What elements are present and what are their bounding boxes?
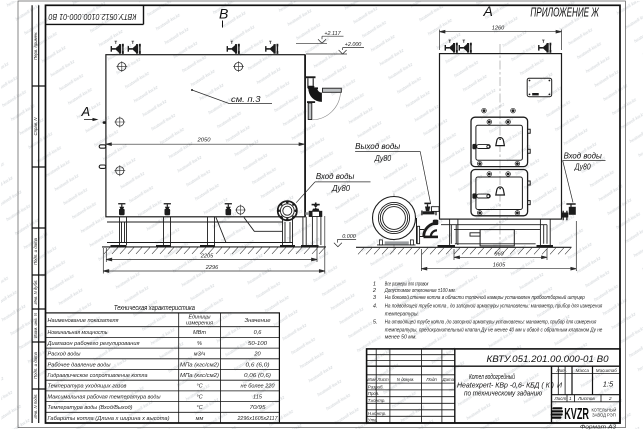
svg-text:20: 20 (253, 352, 261, 358)
svg-text:температуры, предохранительный: температуры, предохранительный клапан Ду… (385, 326, 603, 333)
svg-text:Перв. примен.: Перв. примен. (33, 31, 38, 60)
svg-text:Изм: Изм (367, 377, 375, 382)
svg-text:А: А (483, 3, 493, 19)
svg-text:Пров.: Пров. (368, 391, 380, 396)
svg-text:0.000: 0.000 (342, 234, 356, 240)
svg-text:2050: 2050 (197, 138, 212, 144)
svg-text:На отводящей трубе котла ,до з: На отводящей трубе котла ,до запорной ар… (385, 319, 597, 326)
svg-text:МВт: МВт (193, 330, 206, 336)
svg-text:°С: °С (196, 394, 203, 400)
svg-text:Справ. N: Справ. N (33, 117, 38, 136)
svg-text:измерения: измерения (186, 321, 213, 327)
svg-text:Подп. и дата: Подп. и дата (33, 351, 38, 379)
svg-text:Разраб.: Разраб. (368, 384, 384, 389)
svg-text:Температура уходящих газов: Температура уходящих газов (48, 384, 127, 390)
svg-text:Все размеры для справок: Все размеры для справок (385, 282, 429, 288)
svg-text:мм: мм (196, 416, 204, 422)
svg-text:5.: 5. (373, 320, 378, 326)
svg-text:1: 1 (373, 282, 376, 288)
svg-text:Расход воды: Расход воды (48, 352, 81, 358)
svg-text:ПРИЛОЖЕНИЕ Ж: ПРИЛОЖЕНИЕ Ж (530, 4, 599, 19)
svg-text:Лист: Лист (376, 377, 389, 382)
svg-text:см. п.3: см. п.3 (231, 94, 261, 104)
svg-text:Допустимое отклонение ±100 мм: Допустимое отклонение ±100 мм. (384, 288, 456, 294)
svg-text:Наименование показателя: Наименование показателя (48, 318, 119, 324)
svg-text:2: 2 (608, 396, 612, 401)
svg-text:КОТЕЛЬНЫЙ: КОТЕЛЬНЫЙ (592, 407, 617, 412)
svg-text:960: 960 (494, 251, 504, 257)
svg-text:Рабочее давление воды: Рабочее давление воды (48, 362, 111, 368)
svg-text:не более 220: не более 220 (241, 384, 276, 390)
svg-text:Ду80: Ду80 (374, 154, 392, 163)
svg-text:Подп: Подп (426, 377, 437, 382)
svg-text:Масса: Масса (576, 368, 590, 373)
svg-text:Ду80: Ду80 (331, 184, 350, 193)
svg-text:Диапазон рабочего регулировани: Диапазон рабочего регулирования (46, 341, 139, 347)
svg-text:температуры.: температуры. (385, 312, 419, 318)
svg-text:по техническому заданию: по техническому заданию (464, 390, 543, 398)
svg-text:+2.117: +2.117 (324, 31, 341, 37)
svg-text:Взам. инв. N: Взам. инв. N (33, 312, 38, 338)
svg-text:Вход воды: Вход воды (564, 151, 602, 160)
svg-text:Максимальная рабочая температу: Максимальная рабочая температура воды (48, 394, 161, 400)
svg-text:Номинальная мощность: Номинальная мощность (48, 330, 108, 336)
svg-text:Н.контр.: Н.контр. (368, 411, 387, 416)
svg-text:Листов: Листов (577, 396, 595, 401)
svg-text:70/95: 70/95 (250, 405, 267, 411)
svg-text:KVZR: KVZR (564, 406, 589, 423)
svg-text:0,6: 0,6 (254, 330, 263, 336)
svg-text:менее 50 мм.: менее 50 мм. (385, 335, 417, 341)
svg-text:2205: 2205 (200, 254, 214, 260)
svg-text:МПа (кгс/см2): МПа (кгс/см2) (180, 362, 219, 368)
svg-text:КВТУ.051.201.00.000-01 В0: КВТУ.051.201.00.000-01 В0 (487, 354, 610, 365)
svg-text:4.: 4. (373, 304, 378, 310)
svg-text:0,06 (0,6): 0,06 (0,6) (244, 373, 271, 379)
svg-text:А: А (81, 104, 91, 119)
svg-text:°С: °С (196, 405, 203, 411)
svg-text:1: 1 (569, 396, 572, 401)
svg-text:Масштаб: Масштаб (596, 368, 617, 373)
svg-text:°С: °С (196, 384, 203, 390)
svg-text:+2.000: +2.000 (345, 42, 362, 48)
svg-text:2296х1605х2117: 2296х1605х2117 (237, 416, 279, 422)
svg-text:1:5: 1:5 (603, 380, 614, 389)
svg-text:м3/ч: м3/ч (194, 352, 205, 358)
svg-text:На подводящей трубе котла ,: На подводящей трубе котла , до запорной … (385, 303, 603, 310)
svg-text:Выход воды: Выход воды (355, 142, 400, 151)
svg-text:Единицы: Единицы (189, 314, 211, 320)
svg-text:Температура воды (Вход/Выход): Температура воды (Вход/Выход) (48, 405, 133, 411)
svg-text:МПа (кгс/см2): МПа (кгс/см2) (180, 373, 219, 379)
svg-text:2296: 2296 (205, 265, 219, 271)
svg-text:0,6 (6,0): 0,6 (6,0) (246, 362, 270, 368)
svg-text:Подп. и дата: Подп. и дата (33, 237, 38, 265)
svg-text:Дата: Дата (442, 377, 455, 382)
svg-text:Инв. N дубл.: Инв. N дубл. (33, 280, 38, 305)
svg-text:Габариты котла (Длина х ширина: Габариты котла (Длина х ширина х высота) (48, 416, 170, 422)
svg-text:Лит.: Лит. (556, 368, 568, 373)
svg-text:Инв. N подл.: Инв. N подл. (33, 393, 38, 418)
svg-text:115: 115 (253, 394, 263, 400)
svg-text:Ду80: Ду80 (574, 163, 591, 172)
svg-text:Вход воды: Вход воды (316, 172, 354, 181)
svg-text:КВТУ.0512.0100.000-01 В0: КВТУ.0512.0100.000-01 В0 (48, 12, 136, 22)
svg-text:%: % (197, 341, 202, 347)
svg-text:N докум.: N докум. (397, 377, 415, 382)
svg-text:50-100: 50-100 (248, 341, 268, 347)
svg-text:Значение: Значение (245, 318, 271, 324)
svg-text:ЗАВОД РЭП: ЗАВОД РЭП (592, 413, 616, 418)
svg-text:1605: 1605 (493, 263, 506, 269)
svg-text:Т.контр.: Т.контр. (368, 398, 386, 403)
svg-text:Котел водогрейный: Котел водогрейный (469, 373, 515, 381)
svg-text:Утв.: Утв. (368, 417, 378, 422)
svg-text:На боковой стенке котла в обла: На боковой стенке котла в области топочн… (385, 294, 585, 301)
svg-text:Лист: Лист (554, 396, 567, 401)
svg-text:Техническая характеристика: Техническая характеристика (114, 305, 195, 312)
svg-text:Гидравлическое сопротивление к: Гидравлическое сопротивление котла (48, 373, 148, 379)
svg-text:Heatexpert- КВр -0,6- КБД ( К: Heatexpert- КВр -0,6- КБД ( К ) (457, 383, 554, 390)
svg-text:В: В (219, 6, 228, 22)
svg-text:1260: 1260 (492, 26, 505, 32)
svg-text:Формат А3: Формат А3 (580, 424, 616, 430)
